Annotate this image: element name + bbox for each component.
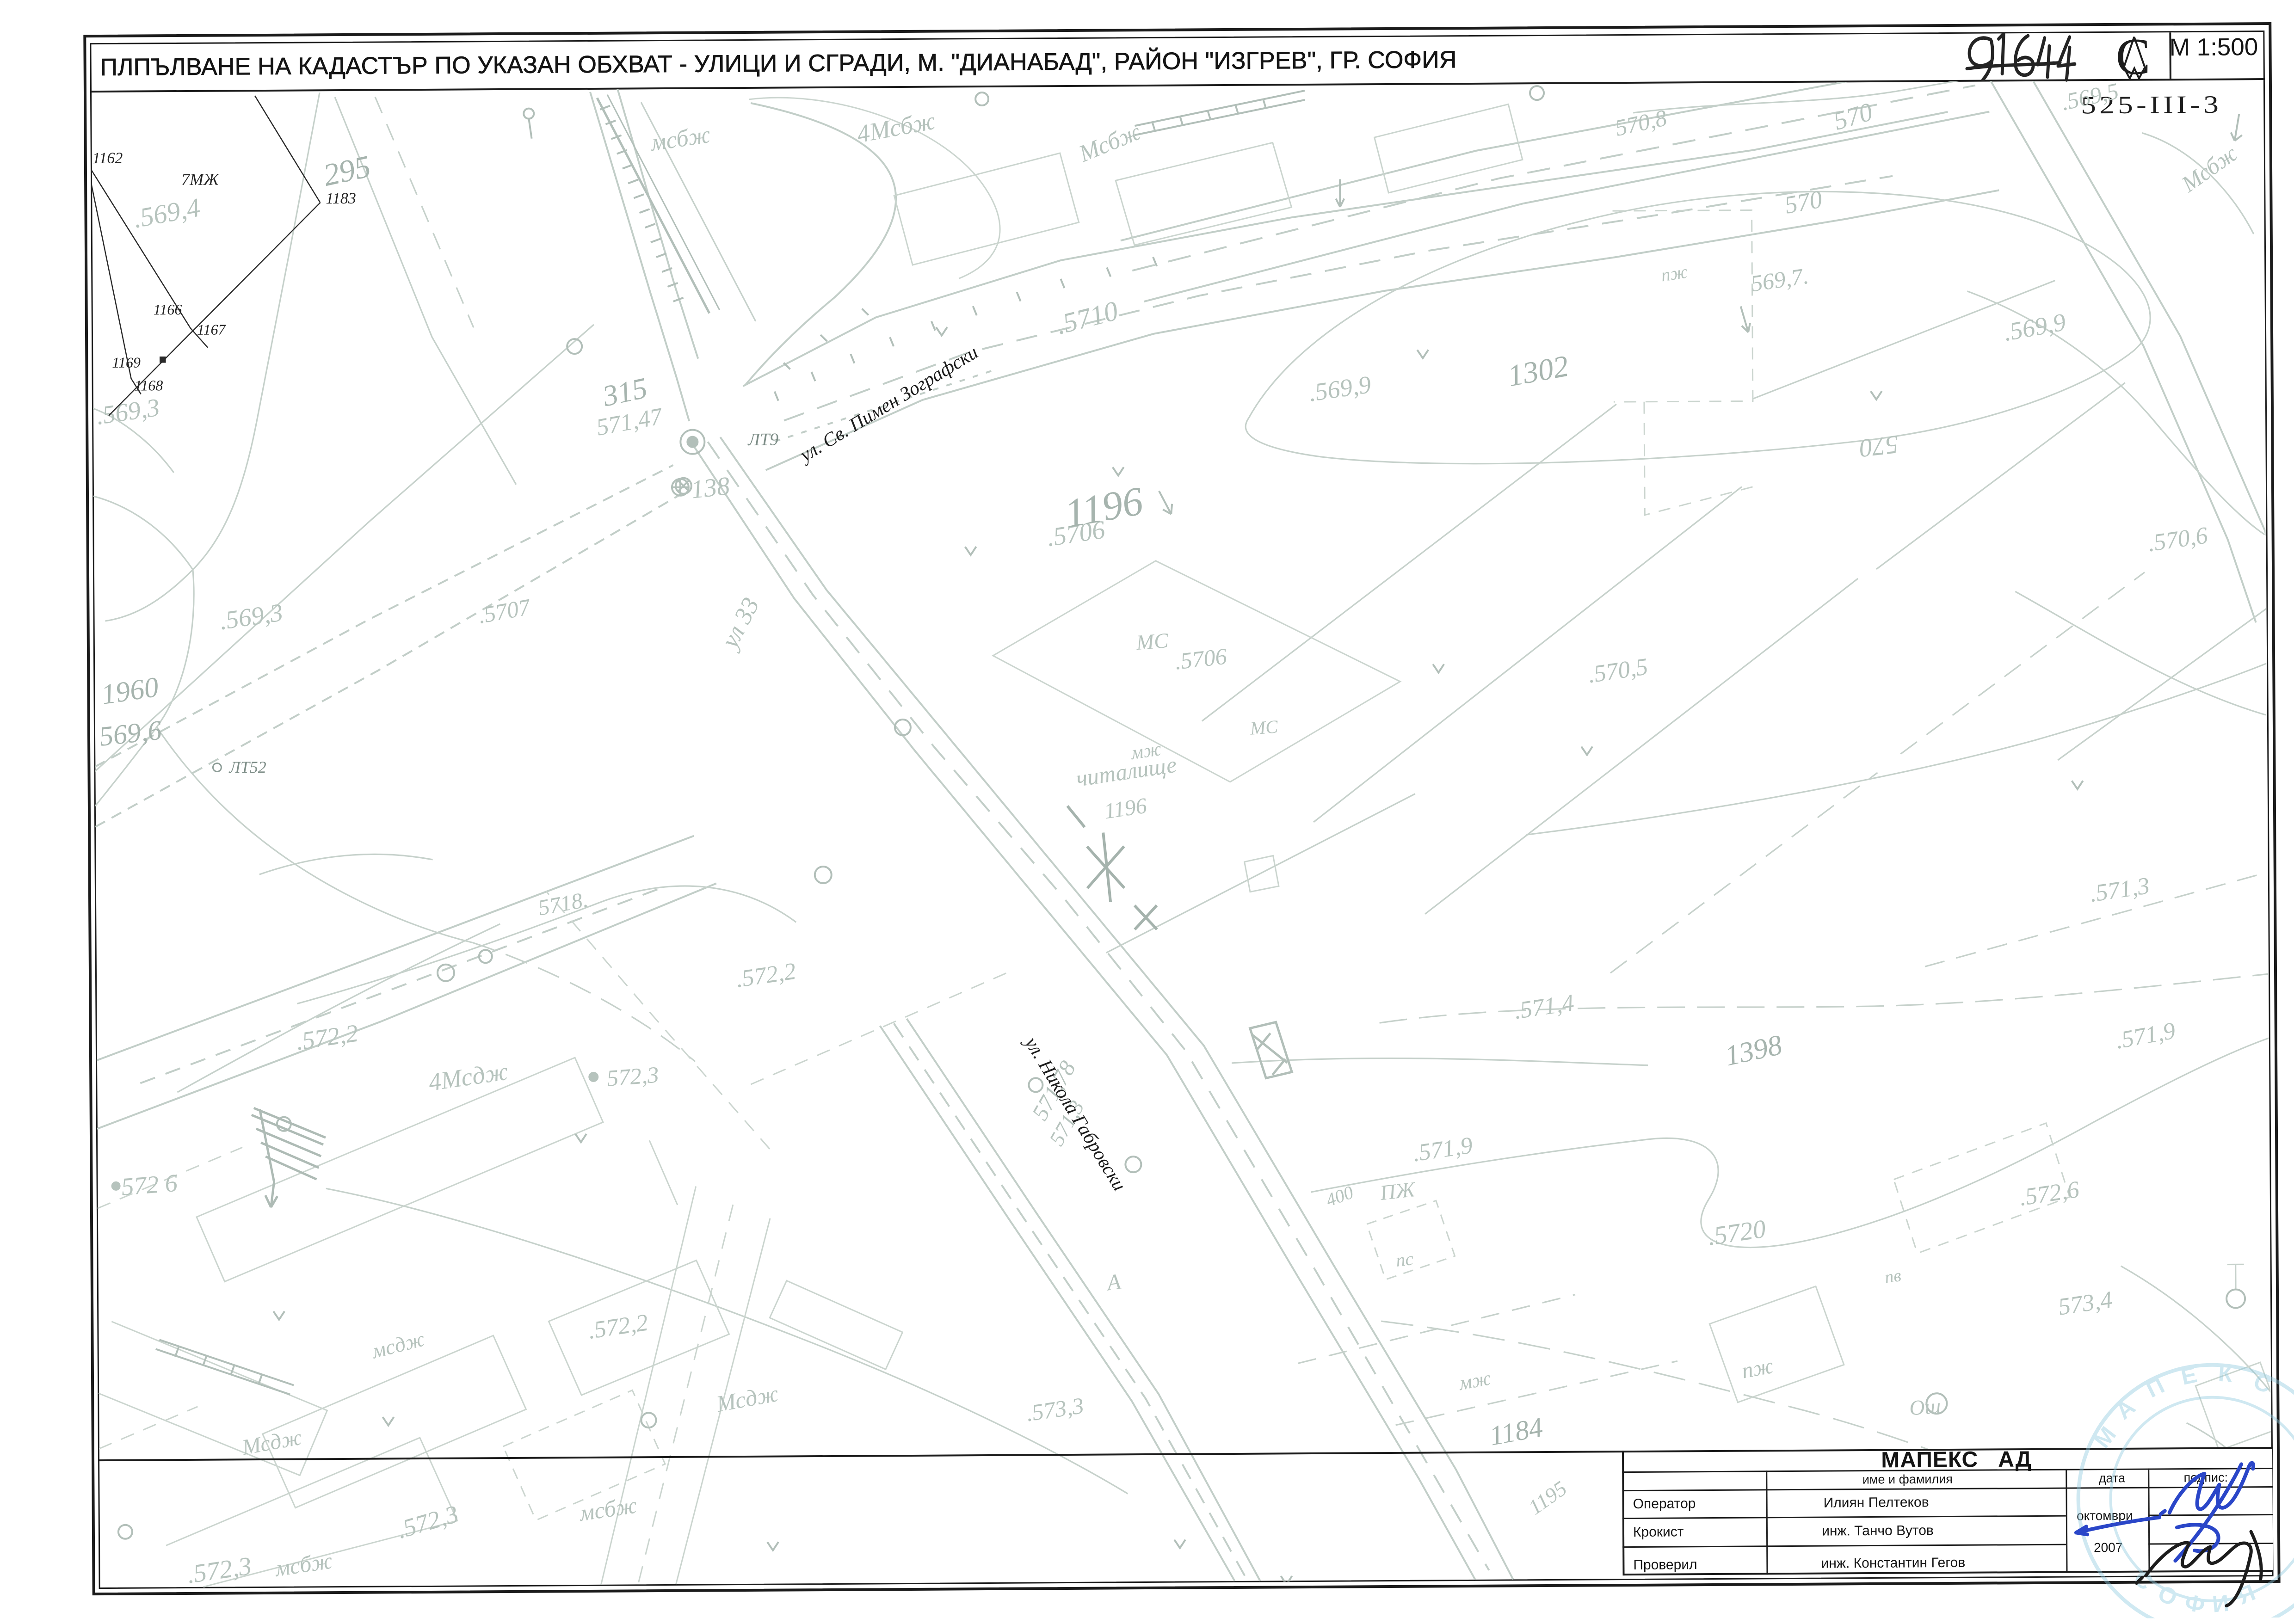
svg-text:К: К bbox=[2217, 1360, 2233, 1387]
svg-text:C: C bbox=[2115, 28, 2150, 85]
svg-text:Ф: Ф bbox=[2183, 1589, 2207, 1618]
svg-text:П: П bbox=[2142, 1372, 2168, 1403]
svg-text:А: А bbox=[2110, 1394, 2140, 1424]
svg-text:М: М bbox=[2089, 1422, 2121, 1453]
svg-text:С: С bbox=[2128, 1565, 2158, 1595]
